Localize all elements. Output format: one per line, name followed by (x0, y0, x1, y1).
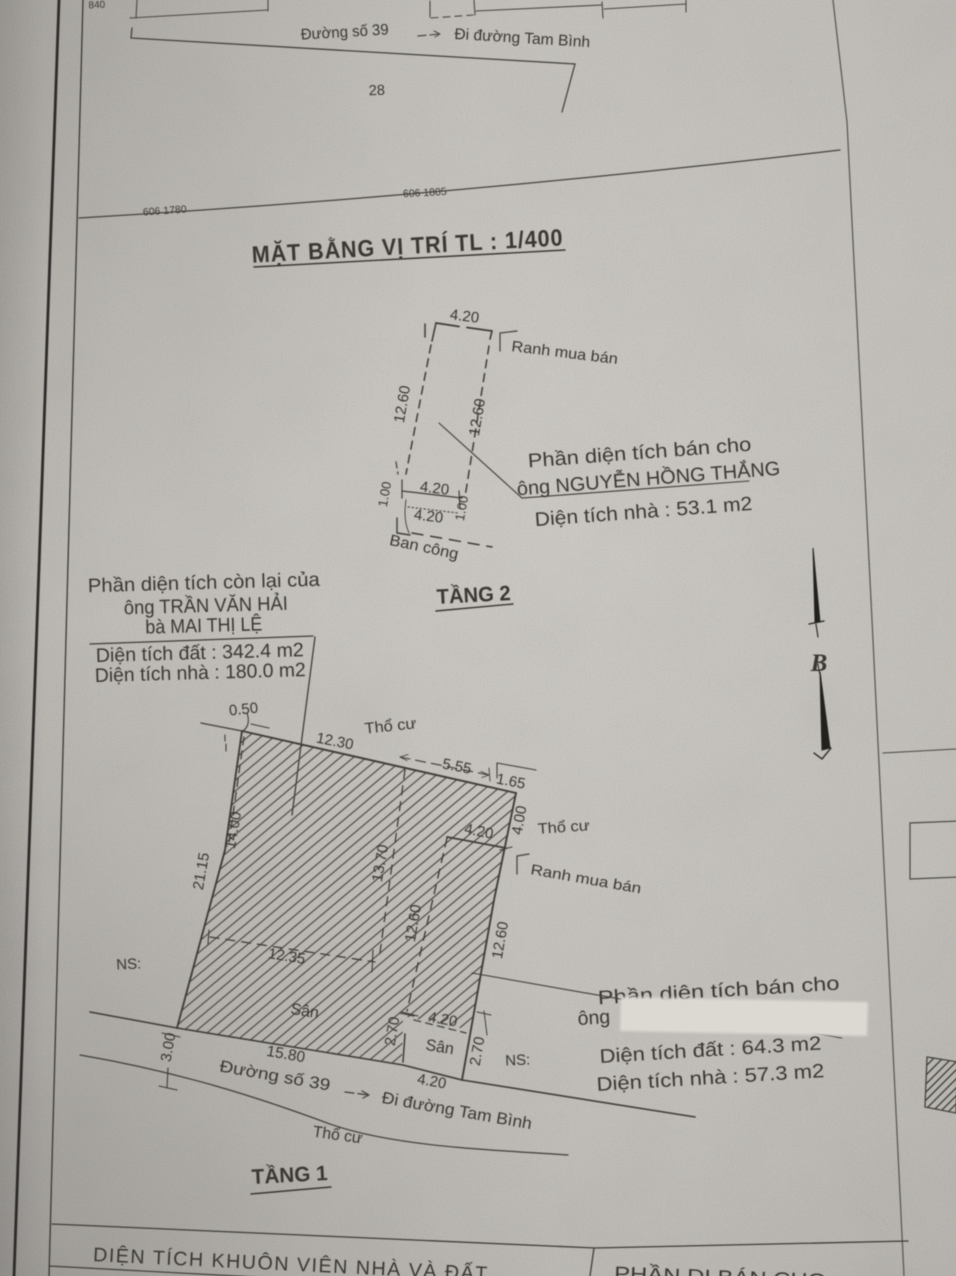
svg-text:NS:: NS: (116, 955, 142, 973)
svg-text:B: B (810, 650, 828, 677)
svg-text:840: 840 (88, 0, 106, 11)
svg-text:4.20: 4.20 (449, 306, 480, 326)
svg-text:NS:: NS: (505, 1051, 531, 1069)
svg-text:bà MAI THỊ LỆ: bà MAI THỊ LỆ (145, 612, 263, 638)
svg-text:28: 28 (369, 83, 386, 100)
svg-text:ông: ông (577, 1006, 611, 1030)
svg-text:0.50: 0.50 (228, 700, 259, 720)
svg-text:4.20: 4.20 (419, 478, 450, 498)
svg-text:Thổ cư: Thổ cư (537, 817, 590, 838)
svg-text:TẦNG 1: TẦNG 1 (251, 1162, 328, 1189)
svg-text:4.20: 4.20 (413, 506, 444, 526)
